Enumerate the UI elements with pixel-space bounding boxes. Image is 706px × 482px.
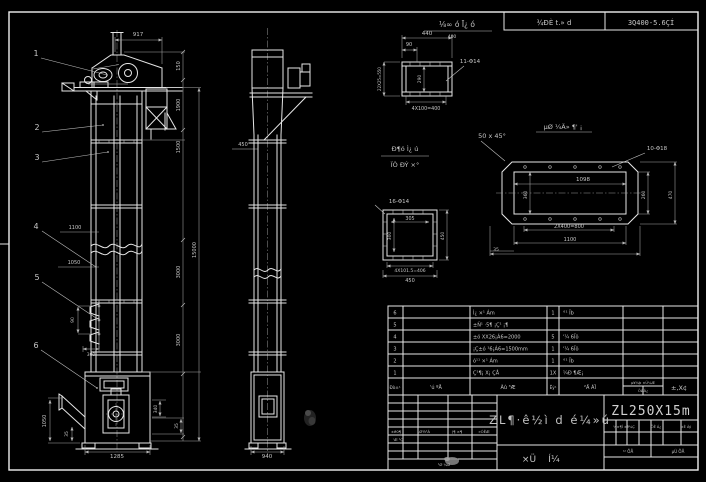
drawing-canvas: ⅛∞ ó Ī¿ ó 400 ¾ÐÈ t.» d 3Q400-5.6ÇÍ xyxy=(0,0,706,482)
bom-header-cell: ²Ä ÁÏ xyxy=(584,384,596,391)
bom-material: '¼ 6Ïõ xyxy=(563,334,579,341)
dimension-text: 35 xyxy=(64,431,70,437)
detail-label: Ð¶ó Ì¿ ú xyxy=(392,144,419,153)
balloon-number: 6 xyxy=(33,341,38,350)
bom-no: 2 xyxy=(393,359,396,365)
drawing-model: ZL250X15m xyxy=(611,404,690,419)
detail-label: µØ ¼Ä» ¶' ¡ xyxy=(544,122,583,131)
dimension-text: 1900 xyxy=(176,99,182,112)
dimension-text: 440 xyxy=(422,31,433,37)
titleblock-label: ,Ø½¹Á xyxy=(418,429,430,434)
bom-no: 4 xyxy=(393,335,396,341)
bom-header-cell: Ãû ³Æ xyxy=(500,384,515,391)
balloon-number: 4 xyxy=(33,222,38,231)
dimension-text: 1100 xyxy=(564,237,577,243)
detail-rect-flange xyxy=(381,132,677,256)
dimension-text: 35 xyxy=(174,423,180,429)
titleblock-label: (¶ ×¶ xyxy=(452,429,463,434)
bom-header-cell: ÖØÁ¿ xyxy=(638,388,648,393)
bom-header-cell: Êý¹ xyxy=(550,385,557,390)
dimension-text: 940 xyxy=(262,454,273,460)
dimension-text: 1500 xyxy=(176,141,182,154)
bom-desc: ±ó XX26¡Á6=2000 xyxy=(473,334,521,341)
dimension-text: 300 xyxy=(387,232,393,241)
titleblock-label: ¼×¶Î ±ê¼Ç xyxy=(613,424,635,429)
dimension-text: 1100 xyxy=(69,225,82,231)
annotation-layer: 1234569171501900150030003000150001100105… xyxy=(33,31,691,467)
bom-header-cell: Ðò±¹ xyxy=(390,385,401,390)
side-view xyxy=(232,28,316,455)
top-strip: ⅛∞ ó Ī¿ ó 400 ¾ÐÈ t.» d 3Q400-5.6ÇÍ xyxy=(439,18,674,40)
titleblock-label: 'Æ ¹Ç xyxy=(393,437,403,442)
bom-material: '¼ 6Ïõ xyxy=(563,346,579,353)
bom-material: °¹ Ïb xyxy=(563,310,574,317)
bom-header-cell: µ¥¼þ ×Ü¼Æ xyxy=(631,380,656,385)
dimension-text: 90 xyxy=(406,42,412,48)
bom-material: ¼Ð ¶Æ¡ xyxy=(563,371,583,377)
dimension-text: 340 xyxy=(153,405,159,414)
bom-desc: ±Ñ¹ ·5¶ ¡Ç¹ ¡¶ xyxy=(473,322,508,329)
dimension-text: 300 xyxy=(87,352,96,358)
titleblock-label: ¹² ÕÅ xyxy=(623,449,634,454)
dimension-text: 1050 xyxy=(68,260,81,266)
strip-cell-left: ¾ÐÈ t.» d xyxy=(537,18,572,27)
dimension-text: 450 xyxy=(405,278,415,284)
dimension-text: 1050 xyxy=(42,415,48,428)
dimension-text: 1098 xyxy=(576,177,590,183)
detail-square-flange xyxy=(375,205,449,278)
bom-desc: ó¹¹ ×¹ Ám xyxy=(473,358,498,365)
bom-desc: Ì¿ ×¹ Ám xyxy=(473,310,495,317)
dimension-text: 22X25=550 xyxy=(377,67,382,91)
front-view xyxy=(59,30,182,452)
drawing-subtitle-char-2: Í¼ xyxy=(548,453,560,465)
drawing-subtitle-char-1: ×Ü xyxy=(522,454,536,465)
bom-material: °¹ Ïb xyxy=(563,358,574,365)
dimension-text: 260 xyxy=(641,191,647,200)
titleblock-label: ÖÊ Á¿ xyxy=(651,424,661,429)
titleblock-label: »ÓÊÆ xyxy=(478,429,490,434)
dimension-text: 1285 xyxy=(110,454,124,460)
strip-cell-right: 3Q400-5.6ÇÍ xyxy=(628,18,674,27)
dimension-text: 290 xyxy=(417,75,423,84)
bom-no: 5 xyxy=(393,323,396,329)
dimension-text: 50 x 45° xyxy=(478,132,506,140)
balloon-number: 3 xyxy=(34,153,39,162)
bom-qty: 5 xyxy=(551,335,554,341)
balloon-number: 5 xyxy=(34,273,39,282)
dimension-text: 16-Φ14 xyxy=(389,199,410,205)
titleblock-label: ¹Ø ¼Ø xyxy=(438,462,450,467)
dimension-text: 470 xyxy=(668,191,674,200)
smudge-artifact xyxy=(304,410,316,426)
dimension-text: 90 xyxy=(70,317,76,323)
titleblock-label: µÚ ÕÅ xyxy=(672,449,685,454)
bom-qty: 1 xyxy=(551,359,554,365)
dimension-text: 917 xyxy=(133,32,144,38)
balloon-number: 1 xyxy=(33,49,38,58)
border-frame xyxy=(0,12,698,470)
drawing-title: ZL¶·ê½ì d é¼»ú xyxy=(489,413,611,427)
dimension-text: 305 xyxy=(405,216,414,222)
bom-qty: 1X xyxy=(550,371,557,377)
balloon-number: 2 xyxy=(34,123,39,132)
dimension-text: 450 xyxy=(440,232,446,241)
bom-qty: 1 xyxy=(551,347,554,353)
bom-qty: 1 xyxy=(551,311,554,317)
titleblock-label: ±ê0¶ xyxy=(391,429,401,434)
bom-header-cell: ±,X¢ xyxy=(671,384,687,392)
dimension-text: 150 xyxy=(176,61,182,71)
dimension-text: 11-Φ14 xyxy=(460,59,481,65)
detail-channel-section xyxy=(384,35,464,105)
dimension-text: 4X100=400 xyxy=(412,106,441,112)
bom-no: 6 xyxy=(393,311,396,317)
dimension-text: 3000 xyxy=(176,266,182,279)
detail-label: ÏÒ ÐÝ ×° xyxy=(391,160,420,169)
dimension-text: 360 xyxy=(523,191,529,200)
bom-desc: ¡Ç±ó ¹6¡Á6=1500mm xyxy=(473,346,528,353)
view-scale-label: ⅛∞ ó Ī¿ ó xyxy=(439,20,475,29)
dimension-text: 3000 xyxy=(176,334,182,347)
cad-drawing-page: ⅛∞ ó Ī¿ ó 400 ¾ÐÈ t.» d 3Q400-5.6ÇÍ xyxy=(0,0,706,482)
dimension-text: 4X101.5=406 xyxy=(394,268,425,274)
dimension-text: 2X400=800 xyxy=(554,224,584,230)
bom-desc: Ç¹¶¡ X¡ ÇÅ xyxy=(473,370,500,377)
bom-header-cell: 'ú ºÅ xyxy=(430,384,442,391)
bom-no: 3 xyxy=(393,347,396,353)
dimension-text: 450 xyxy=(238,142,248,148)
dimension-text: 15000 xyxy=(192,242,198,258)
dimension-text: 35 xyxy=(493,247,499,253)
dimension-text: 10-Φ18 xyxy=(647,146,668,152)
bom-no: 1 xyxy=(393,371,396,377)
titleblock-label: ±È Àý xyxy=(681,424,692,429)
title-block: ZL250X15m ZL¶·ê½ì d é¼»ú ×Ü Í¼ xyxy=(388,395,698,470)
